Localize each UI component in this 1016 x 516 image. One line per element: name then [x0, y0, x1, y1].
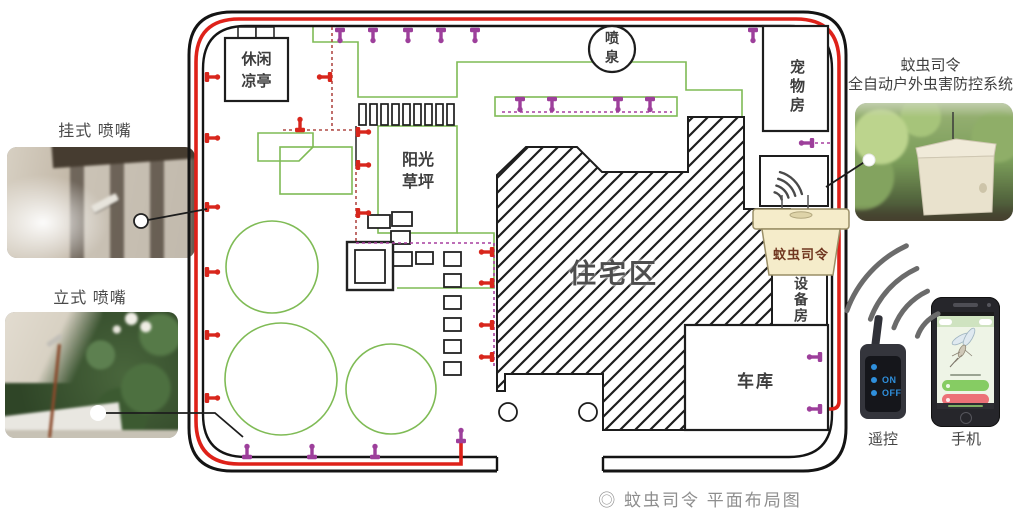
device-label: 蚊虫司令	[764, 244, 838, 263]
remote-screen: ON OFF	[865, 356, 901, 412]
lawn-outlines	[225, 27, 742, 435]
remote-label: 遥控	[855, 428, 911, 449]
system-title-line2: 全自动户外虫害防控系统	[845, 76, 1016, 95]
stepping-stones	[347, 212, 461, 375]
wifi-icon	[775, 172, 802, 199]
wifi-box	[760, 156, 828, 206]
phone-bottombar	[937, 403, 994, 409]
phone-home-button	[960, 412, 972, 424]
pet-room-label: 宠物房	[786, 46, 807, 128]
callout-connectors	[106, 161, 866, 437]
phone-app-header	[937, 316, 994, 327]
planter-inner	[355, 250, 385, 283]
garage-label: 车库	[716, 367, 796, 392]
phone	[931, 297, 1000, 427]
phone-app-screen	[937, 312, 994, 409]
planter-outer	[347, 242, 393, 290]
residential-label: 住宅区	[558, 252, 670, 291]
diagram-caption: ◎ 蚊虫司令 平面布局图	[550, 486, 850, 511]
system-title-line1: 蚊虫司令	[845, 57, 1016, 76]
tree-circle	[226, 221, 318, 313]
red-pipe-line	[196, 19, 839, 464]
standing-nozzle-photo	[5, 312, 178, 438]
tree-circle	[346, 344, 436, 434]
purple-nozzle-pin-icons	[242, 28, 822, 459]
remote-off-label: OFF	[882, 388, 902, 398]
lawn-label: 阳光 草坪	[379, 150, 457, 195]
phone-label: 手机	[938, 428, 994, 449]
device-box	[753, 195, 849, 275]
fountain-label: 喷 泉	[592, 29, 632, 67]
equipment-room-label: 设备房	[791, 272, 811, 328]
perimeter-wall	[189, 12, 846, 471]
pavilion-label: 休闲 凉亭	[226, 49, 287, 93]
remote-led-dot	[871, 390, 877, 396]
remote-control: ON OFF	[860, 344, 906, 419]
phone-green-button	[942, 380, 989, 391]
phone-camera-dot	[987, 303, 991, 307]
hanging-nozzle-label: 挂式 喷嘴	[20, 117, 170, 141]
remote-led-dot	[871, 364, 877, 370]
mosquito-system-layout-diagram: ON OFF	[0, 0, 1016, 516]
system-device-photo	[855, 103, 1013, 221]
phone-caption-line	[950, 374, 981, 376]
hanging-nozzle-photo-art	[7, 147, 195, 258]
dashed-feed-lines-red	[283, 27, 356, 243]
red-nozzle-pin-icons	[205, 72, 494, 403]
remote-led-dot	[871, 377, 877, 383]
hanging-nozzle-photo	[7, 147, 195, 258]
standing-nozzle-photo-art	[5, 312, 178, 438]
standing-nozzle-label: 立式 喷嘴	[15, 284, 165, 308]
system-title: 蚊虫司令 全自动户外虫害防控系统	[845, 57, 1016, 95]
remote-on-label: ON	[882, 375, 897, 385]
phone-speaker	[953, 303, 978, 307]
system-device-photo-art	[855, 103, 1013, 221]
tree-circle	[225, 323, 337, 435]
wifi-signal-icon	[847, 246, 938, 336]
pergola-slats	[359, 104, 454, 125]
